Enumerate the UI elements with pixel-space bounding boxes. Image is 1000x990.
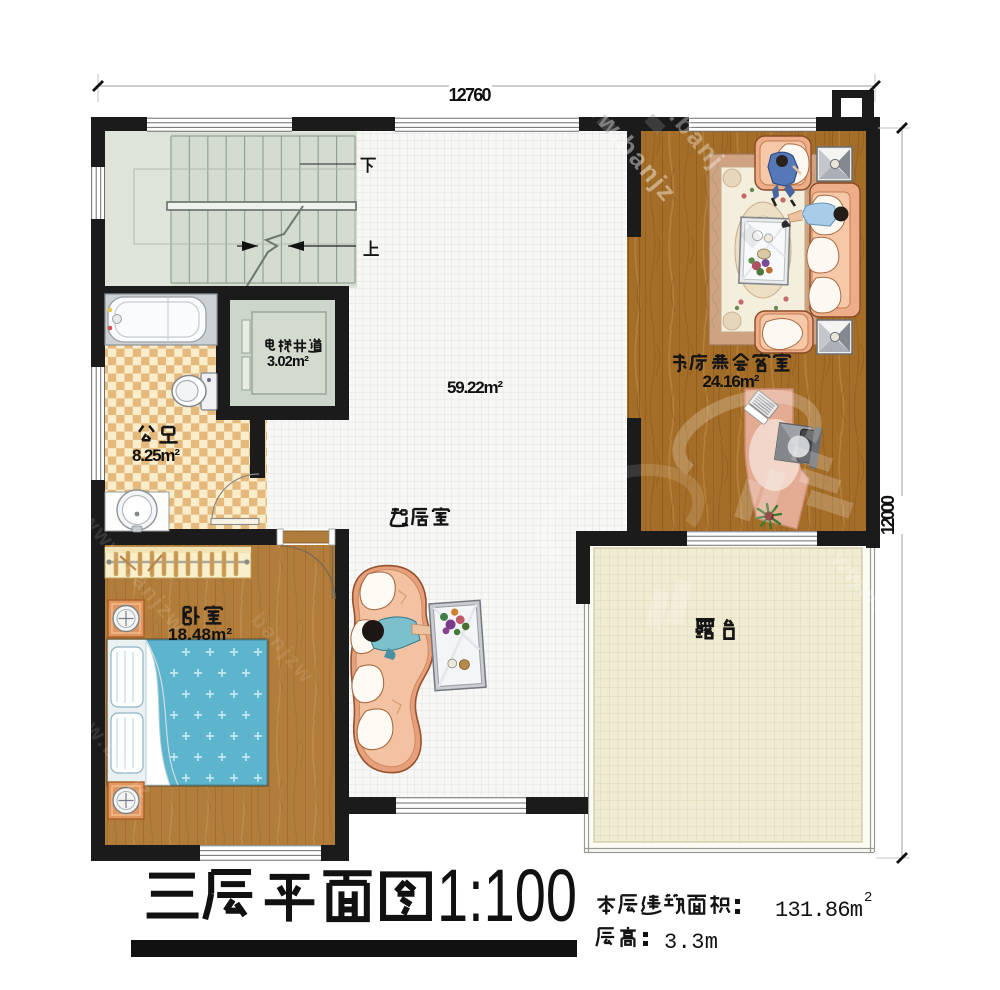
svg-text:12760: 12760 (449, 85, 492, 105)
svg-text:24.16m²: 24.16m² (703, 372, 760, 391)
svg-text:59.22m²: 59.22m² (447, 378, 503, 397)
svg-text:12000: 12000 (878, 495, 898, 535)
svg-text:18.48m²: 18.48m² (168, 625, 232, 644)
svg-text:8.25m²: 8.25m² (132, 446, 180, 465)
svg-text:1:100: 1:100 (437, 854, 577, 937)
svg-text:131.86m: 131.86m (775, 898, 863, 923)
svg-text:2: 2 (864, 890, 872, 906)
svg-text:3.3m: 3.3m (664, 930, 718, 955)
svg-text:3.02m²: 3.02m² (267, 354, 309, 370)
